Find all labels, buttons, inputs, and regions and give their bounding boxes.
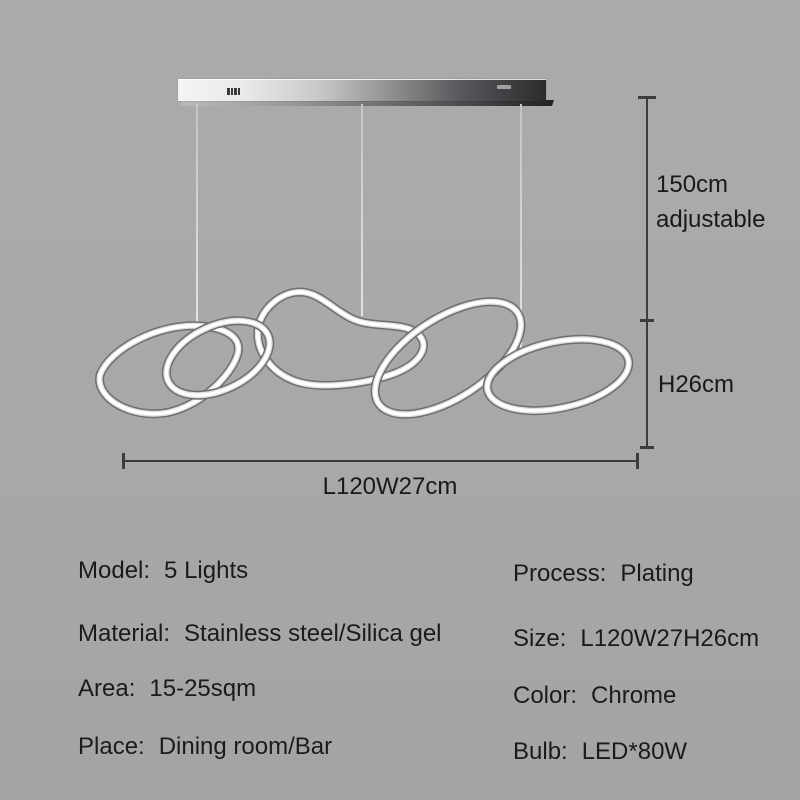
spec-value: 15-25sqm	[149, 675, 256, 702]
spec-value: 5 Lights	[164, 557, 248, 584]
spec-label: Place:	[78, 733, 145, 760]
dimension-cap-bottom	[640, 446, 654, 449]
spec-row-color: Color:Chrome	[513, 682, 676, 710]
drop-height-label-line2: adjustable	[656, 203, 765, 237]
spec-row-bulb: Bulb:LED*80W	[513, 738, 687, 766]
ceiling-canopy-bar	[178, 79, 546, 101]
spec-row-process: Process:Plating	[513, 560, 694, 588]
dimension-cap-left	[122, 453, 125, 469]
spec-row-model: Model:5 Lights	[78, 557, 248, 585]
pendant-rings-illustration	[85, 278, 645, 438]
dimension-cap-top	[638, 96, 656, 99]
spec-value: LED*80W	[582, 738, 687, 765]
drop-height-label-line1: 150cm	[656, 168, 728, 202]
dimension-tick-middle	[640, 319, 654, 322]
spec-value: Chrome	[591, 682, 676, 709]
product-dimension-diagram: 150cm adjustable H26cm L120W27cm Model:5…	[0, 0, 800, 800]
spec-label: Size:	[513, 625, 566, 652]
height-dimension-line	[646, 98, 648, 448]
ring-center	[258, 292, 424, 385]
spec-label: Process:	[513, 560, 606, 587]
spec-label: Color:	[513, 682, 577, 709]
spec-label: Model:	[78, 557, 150, 584]
fixture-height-label: H26cm	[658, 368, 734, 402]
spec-row-size: Size:L120W27H26cm	[513, 625, 759, 653]
spec-row-area: Area:15-25sqm	[78, 675, 256, 703]
spec-value: Dining room/Bar	[159, 733, 332, 760]
width-dimension-line	[123, 460, 638, 462]
spec-label: Bulb:	[513, 738, 568, 765]
barcode-mark-icon	[227, 88, 240, 95]
spec-label: Area:	[78, 675, 135, 702]
brand-label-icon	[497, 85, 511, 89]
ring-right	[481, 328, 636, 422]
spec-row-material: Material:Stainless steel/Silica gel	[78, 620, 442, 648]
spec-value: Plating	[620, 560, 693, 587]
spec-value: Stainless steel/Silica gel	[184, 620, 441, 647]
dimension-cap-right	[636, 453, 639, 469]
fixture-width-label: L120W27cm	[240, 470, 540, 504]
spec-label: Material:	[78, 620, 170, 647]
spec-value: L120W27H26cm	[580, 625, 759, 652]
spec-row-place: Place:Dining room/Bar	[78, 733, 332, 761]
